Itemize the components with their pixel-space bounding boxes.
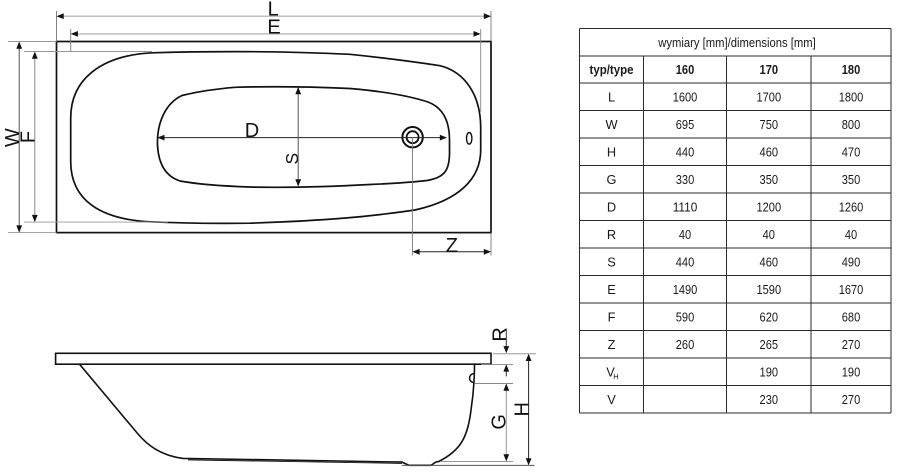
svg-text:F: F <box>608 309 616 324</box>
svg-text:265: 265 <box>760 337 779 352</box>
svg-text:F: F <box>18 131 40 143</box>
svg-text:180: 180 <box>842 62 861 77</box>
svg-text:R: R <box>489 327 511 341</box>
svg-text:440: 440 <box>676 144 695 159</box>
svg-text:G: G <box>607 172 617 187</box>
svg-text:190: 190 <box>842 364 861 379</box>
svg-text:1260: 1260 <box>839 199 864 214</box>
svg-text:V: V <box>607 392 616 407</box>
svg-text:H: H <box>512 402 534 416</box>
svg-text:D: D <box>607 199 616 214</box>
svg-text:40: 40 <box>763 227 775 242</box>
svg-text:160: 160 <box>676 62 695 77</box>
svg-text:Z: Z <box>608 337 616 352</box>
svg-text:D: D <box>245 120 259 142</box>
svg-text:1200: 1200 <box>757 199 782 214</box>
svg-text:1490: 1490 <box>673 282 698 297</box>
svg-text:460: 460 <box>760 254 779 269</box>
svg-text:G: G <box>489 414 511 430</box>
svg-text:460: 460 <box>760 144 779 159</box>
svg-text:E: E <box>267 16 280 38</box>
svg-text:40: 40 <box>845 227 857 242</box>
svg-text:440: 440 <box>676 254 695 269</box>
svg-text:wymiary [mm]/dimensions [mm]: wymiary [mm]/dimensions [mm] <box>657 35 815 50</box>
svg-text:W: W <box>605 117 618 132</box>
svg-text:350: 350 <box>842 172 861 187</box>
svg-text:typ/type: typ/type <box>590 62 634 77</box>
svg-text:40: 40 <box>679 227 691 242</box>
svg-text:270: 270 <box>842 392 861 407</box>
svg-text:330: 330 <box>676 172 695 187</box>
svg-text:590: 590 <box>676 309 695 324</box>
svg-text:750: 750 <box>760 117 779 132</box>
svg-text:S: S <box>282 153 302 165</box>
svg-text:230: 230 <box>760 392 779 407</box>
svg-text:1670: 1670 <box>839 282 864 297</box>
svg-text:L: L <box>608 89 615 104</box>
svg-text:E: E <box>607 282 616 297</box>
svg-text:695: 695 <box>676 117 695 132</box>
svg-text:1590: 1590 <box>757 282 782 297</box>
svg-text:170: 170 <box>760 62 779 77</box>
svg-text:470: 470 <box>842 144 861 159</box>
svg-text:260: 260 <box>676 337 695 352</box>
svg-text:H: H <box>613 372 618 381</box>
svg-text:680: 680 <box>842 309 861 324</box>
svg-text:190: 190 <box>760 364 779 379</box>
svg-text:1800: 1800 <box>839 89 864 104</box>
svg-text:S: S <box>607 254 616 269</box>
svg-text:1110: 1110 <box>673 199 698 214</box>
svg-text:620: 620 <box>760 309 779 324</box>
svg-text:1700: 1700 <box>757 89 782 104</box>
svg-text:270: 270 <box>842 337 861 352</box>
svg-text:800: 800 <box>842 117 861 132</box>
svg-text:490: 490 <box>842 254 861 269</box>
svg-text:R: R <box>607 227 616 242</box>
svg-text:1600: 1600 <box>673 89 698 104</box>
svg-text:350: 350 <box>760 172 779 187</box>
svg-text:H: H <box>607 144 616 159</box>
svg-text:Z: Z <box>446 235 458 257</box>
